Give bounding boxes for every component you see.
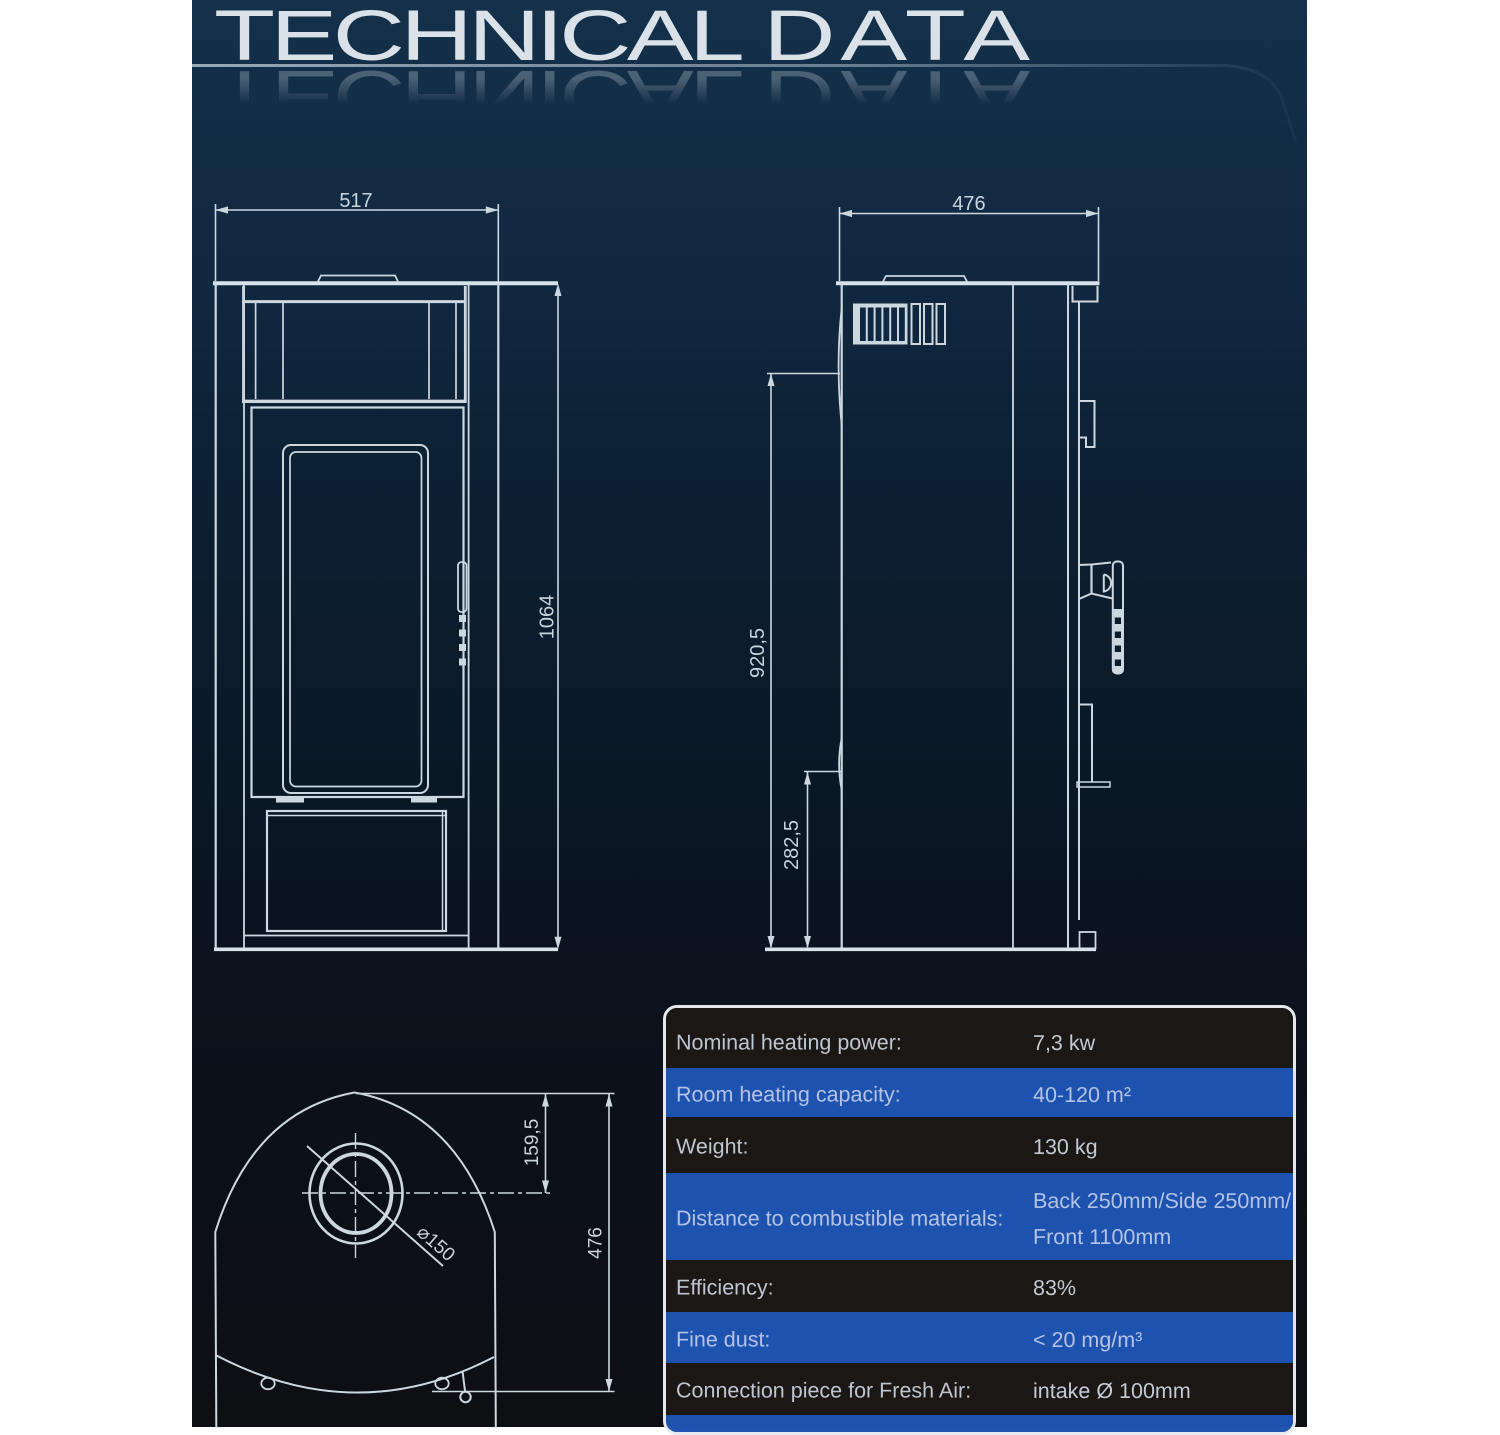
svg-text:476: 476: [952, 193, 985, 215]
svg-text:159,5: 159,5: [522, 1119, 543, 1167]
svg-text:1064: 1064: [537, 595, 559, 640]
svg-text:517: 517: [339, 190, 372, 212]
svg-text:476: 476: [586, 1227, 607, 1259]
svg-text:920,5: 920,5: [747, 628, 769, 678]
svg-text:282,5: 282,5: [781, 820, 803, 870]
